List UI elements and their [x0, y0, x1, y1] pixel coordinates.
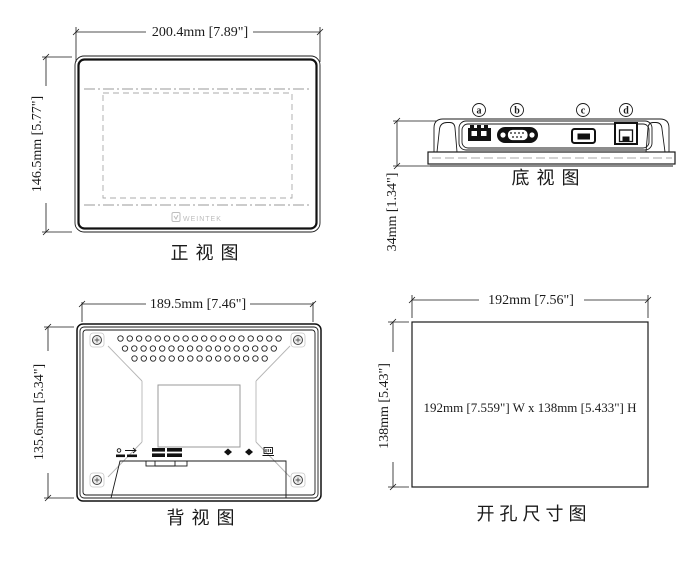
bottom-view: 34mm [1.34"] [385, 104, 675, 252]
power-terminal-port [468, 125, 491, 141]
svg-text:a: a [477, 106, 482, 117]
front-view-title: 正视图 [171, 243, 246, 263]
cutout-view-title: 开孔尺寸图 [477, 504, 592, 524]
cutout-width-label: 192mm [7.56"] [488, 293, 574, 308]
front-height-dimension: 146.5mm [5.77"] [30, 54, 72, 235]
drawing-svg: 200.4mm [7.89"] 146.5mm [5.77"] WEINTEK … [0, 0, 692, 572]
cutout-view: 192mm [7.56"] 138mm [5.43"] 192mm [7.559… [377, 293, 651, 524]
svg-text:d: d [623, 106, 629, 117]
port-label-a: a [473, 104, 486, 117]
front-view: 200.4mm [7.89"] 146.5mm [5.77"] WEINTEK … [30, 25, 323, 263]
usb-port [572, 129, 595, 143]
weintek-logo: WEINTEK [172, 213, 222, 224]
front-bezel-outline [75, 56, 320, 232]
screen-active-area [103, 93, 292, 198]
rear-view: 189.5mm [7.46"] 135.6mm [5.34"] [32, 297, 321, 528]
screen-centerlines [84, 89, 311, 205]
port-label-d: d [620, 104, 633, 117]
front-bezel-inner [79, 60, 317, 229]
panel-dimension-drawing: 200.4mm [7.89"] 146.5mm [5.77"] WEINTEK … [0, 0, 692, 572]
cutout-center-label: 192mm [7.559"] W x 138mm [5.433"] H [423, 400, 636, 415]
port-label-b: b [511, 104, 524, 117]
rear-view-title: 背视图 [167, 508, 242, 528]
weintek-logo-icon [172, 213, 180, 222]
rear-height-dimension: 135.6mm [5.34"] [32, 324, 74, 501]
bottom-height-label: 34mm [1.34"] [385, 173, 400, 252]
rear-width-label: 189.5mm [7.46"] [150, 297, 246, 312]
ethernet-port [615, 123, 637, 144]
cutout-width-dimension: 192mm [7.56"] [409, 293, 651, 318]
rear-width-dimension: 189.5mm [7.46"] [79, 297, 316, 322]
front-height-label: 146.5mm [5.77"] [30, 96, 45, 192]
serial-db9-port [497, 127, 538, 143]
svg-text:c: c [581, 106, 586, 117]
weintek-logo-text: WEINTEK [183, 216, 222, 223]
port-label-c: c [577, 104, 590, 117]
bottom-view-title: 底视图 [512, 168, 587, 188]
rear-height-label: 135.6mm [5.34"] [32, 364, 47, 460]
left-mounting-ear [437, 123, 457, 153]
cutout-height-label: 138mm [5.43"] [377, 363, 392, 449]
front-width-label: 200.4mm [7.89"] [152, 25, 248, 40]
cutout-height-dimension: 138mm [5.43"] [377, 319, 409, 490]
svg-text:b: b [514, 106, 520, 117]
